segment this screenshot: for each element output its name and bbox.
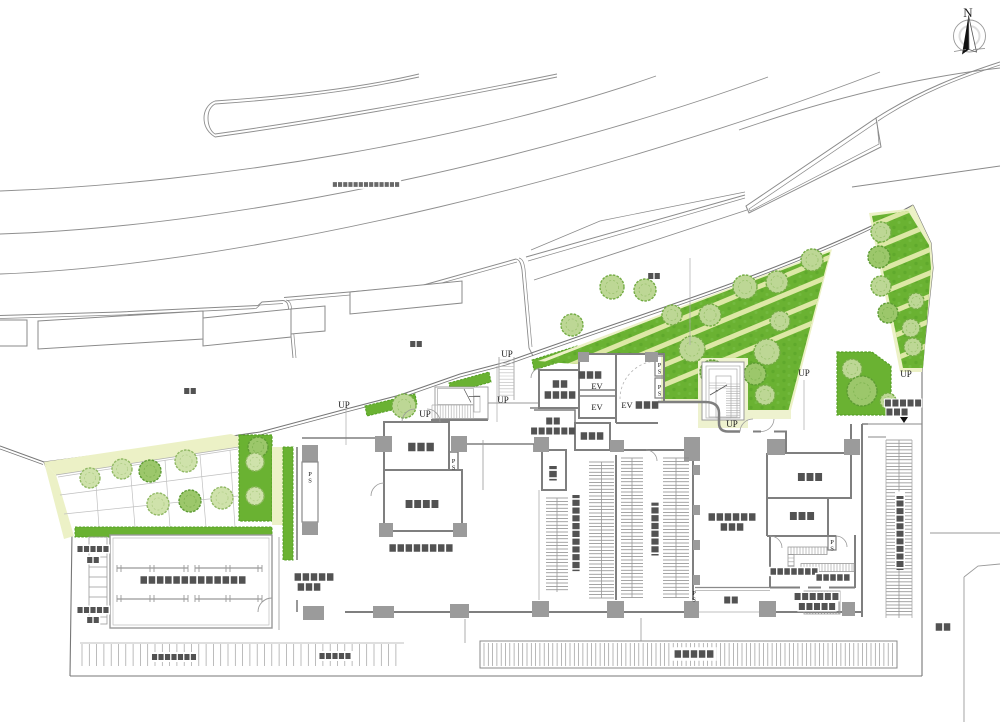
svg-text:UP: UP [338,400,350,410]
svg-text:S: S [692,597,696,604]
svg-text:UP: UP [497,395,509,405]
svg-text:S: S [830,546,834,553]
svg-text:S: S [658,369,662,376]
svg-text:UP: UP [900,369,912,379]
svg-text:UP: UP [501,349,513,359]
svg-text:S: S [658,391,662,398]
svg-text:UP: UP [419,409,431,419]
svg-text:UP: UP [726,419,738,429]
svg-text:UP: UP [798,368,810,378]
svg-text:EV: EV [591,402,603,412]
svg-text:S: S [308,478,312,485]
svg-text:EV: EV [591,381,603,391]
svg-text:S: S [452,465,456,472]
svg-text:EV: EV [621,400,633,410]
